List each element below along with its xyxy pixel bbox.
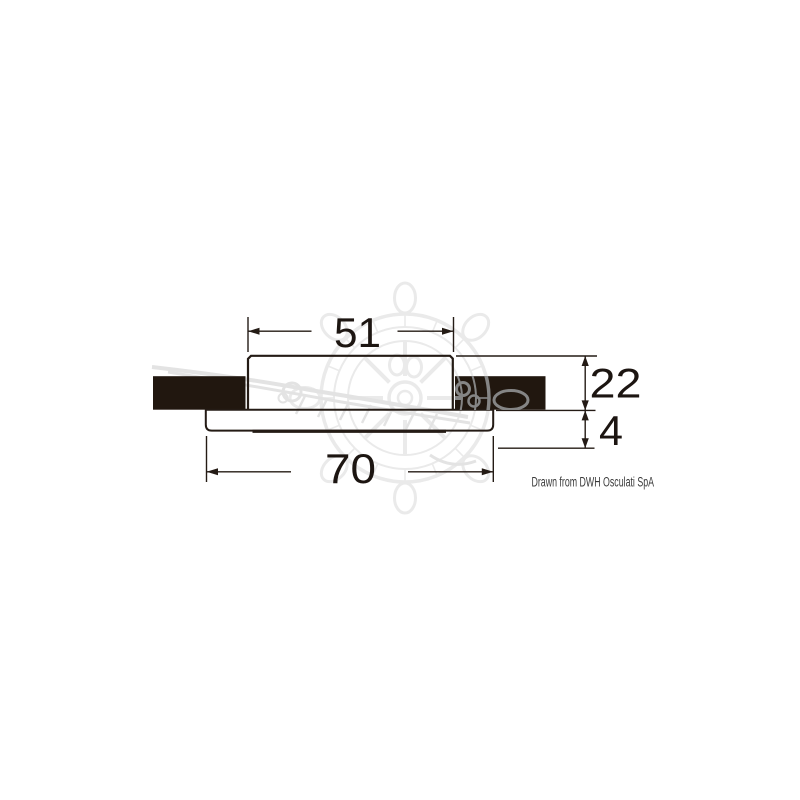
svg-text:Drawn from DWH Osculati SpA: Drawn from DWH Osculati SpA [532,475,655,491]
svg-text:4: 4 [599,407,623,454]
svg-text:70: 70 [325,445,376,492]
svg-text:22: 22 [590,359,642,406]
svg-text:51: 51 [334,309,381,356]
